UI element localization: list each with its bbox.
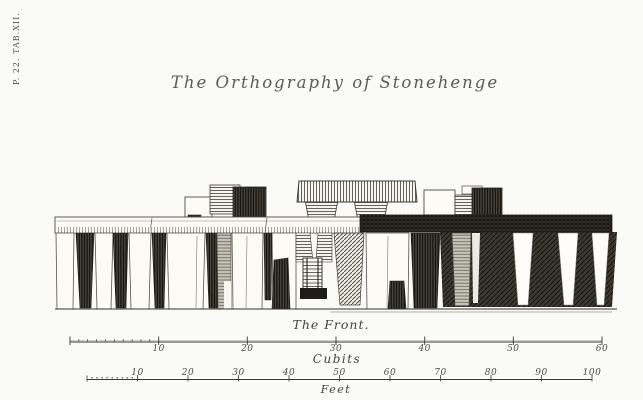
page-title: The Orthography of Stonehenge: [30, 73, 640, 92]
sarsen-upright-shaded: [152, 233, 166, 308]
cubits-unit-label: Cubits: [313, 352, 361, 366]
altar-stone-bar: [300, 288, 327, 299]
sarsen-upright: [129, 233, 151, 309]
ladder-detail: [303, 258, 322, 289]
sarsen-upright-shaded: [76, 233, 94, 308]
sarsen-uprights-row: [56, 233, 609, 309]
cubits-tick-label: 10: [152, 344, 164, 354]
small-stone: [388, 281, 406, 309]
sarsen-upright-shaded: [411, 233, 440, 308]
engraved-plate-page: P. 22. TAB.XII. The Orthography of Stone…: [0, 0, 643, 400]
feet-tick-label: 80: [485, 368, 497, 378]
sarsen-upright-banded: [452, 233, 471, 306]
ground-line: [55, 309, 617, 312]
plate-number-label: P. 22. TAB.XII.: [12, 15, 22, 85]
stonehenge-elevation-drawing: [0, 0, 643, 400]
cubits-tick-label: 50: [507, 344, 519, 354]
cubits-tick-label: 40: [418, 344, 430, 354]
sarsen-upright: [56, 233, 74, 309]
sarsen-upright-shaded: [264, 233, 272, 300]
sarsen-upright-diagonal: [334, 233, 364, 305]
cubits-tick-label: 20: [241, 344, 253, 354]
sarsen-lintel-light: [55, 217, 362, 233]
feet-tick-label: 40: [283, 368, 295, 378]
feet-tick-label: 30: [232, 368, 244, 378]
feet-tick-label: 70: [434, 368, 446, 378]
sarsen-upright: [167, 233, 205, 309]
sarsen-upright: [95, 233, 113, 309]
sarsen-upright-shaded: [113, 233, 128, 308]
feet-unit-label: Feet: [321, 383, 351, 396]
small-stone: [272, 258, 290, 309]
sarsen-lintel-dark: [360, 215, 612, 232]
feet-tick-label: 100: [583, 368, 602, 378]
sarsen-upright: [232, 233, 263, 309]
cubits-tick-label: 60: [596, 344, 608, 354]
feet-tick-label: 10: [131, 368, 143, 378]
front-caption: The Front.: [20, 317, 642, 332]
feet-tick-label: 20: [182, 368, 194, 378]
feet-tick-label: 60: [384, 368, 396, 378]
central-recess: [296, 233, 332, 299]
feet-minor-dots: [91, 377, 133, 378]
feet-tick-label: 50: [333, 368, 345, 378]
feet-tick-label: 90: [535, 368, 547, 378]
